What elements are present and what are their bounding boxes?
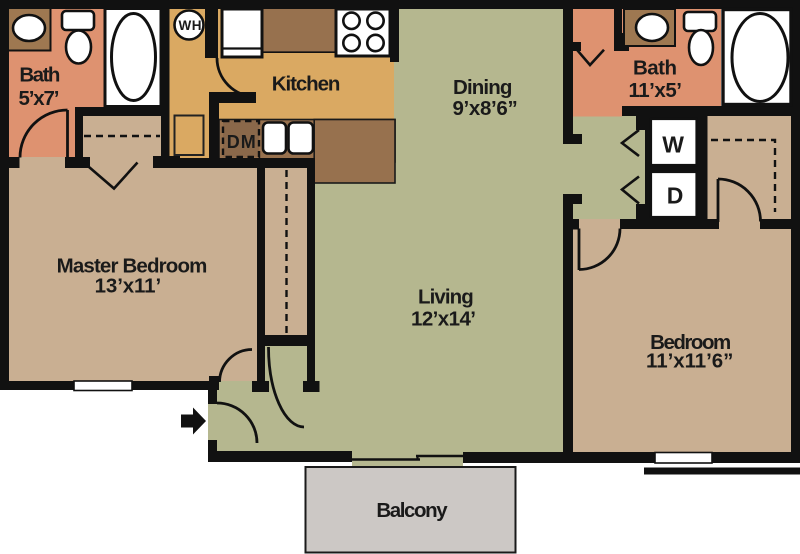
svg-text:Kitchen: Kitchen [272, 72, 341, 95]
svg-text:DM: DM [227, 132, 256, 152]
svg-text:Bath: Bath [19, 64, 60, 87]
svg-text:13’x11’: 13’x11’ [95, 275, 161, 298]
svg-text:Balcony: Balcony [376, 499, 448, 522]
svg-text:5’x7’: 5’x7’ [19, 87, 60, 110]
svg-text:12’x14’: 12’x14’ [411, 308, 476, 331]
svg-text:WH: WH [179, 18, 202, 33]
svg-text:Dining: Dining [453, 76, 512, 99]
svg-text:Bath: Bath [633, 57, 677, 80]
svg-text:W: W [662, 132, 684, 158]
svg-text:9’x8’6”: 9’x8’6” [452, 97, 517, 120]
svg-text:Living: Living [418, 285, 474, 308]
svg-text:11’x11’6”: 11’x11’6” [646, 349, 733, 372]
svg-text:D: D [667, 183, 684, 209]
svg-text:11’x5’: 11’x5’ [628, 79, 682, 102]
